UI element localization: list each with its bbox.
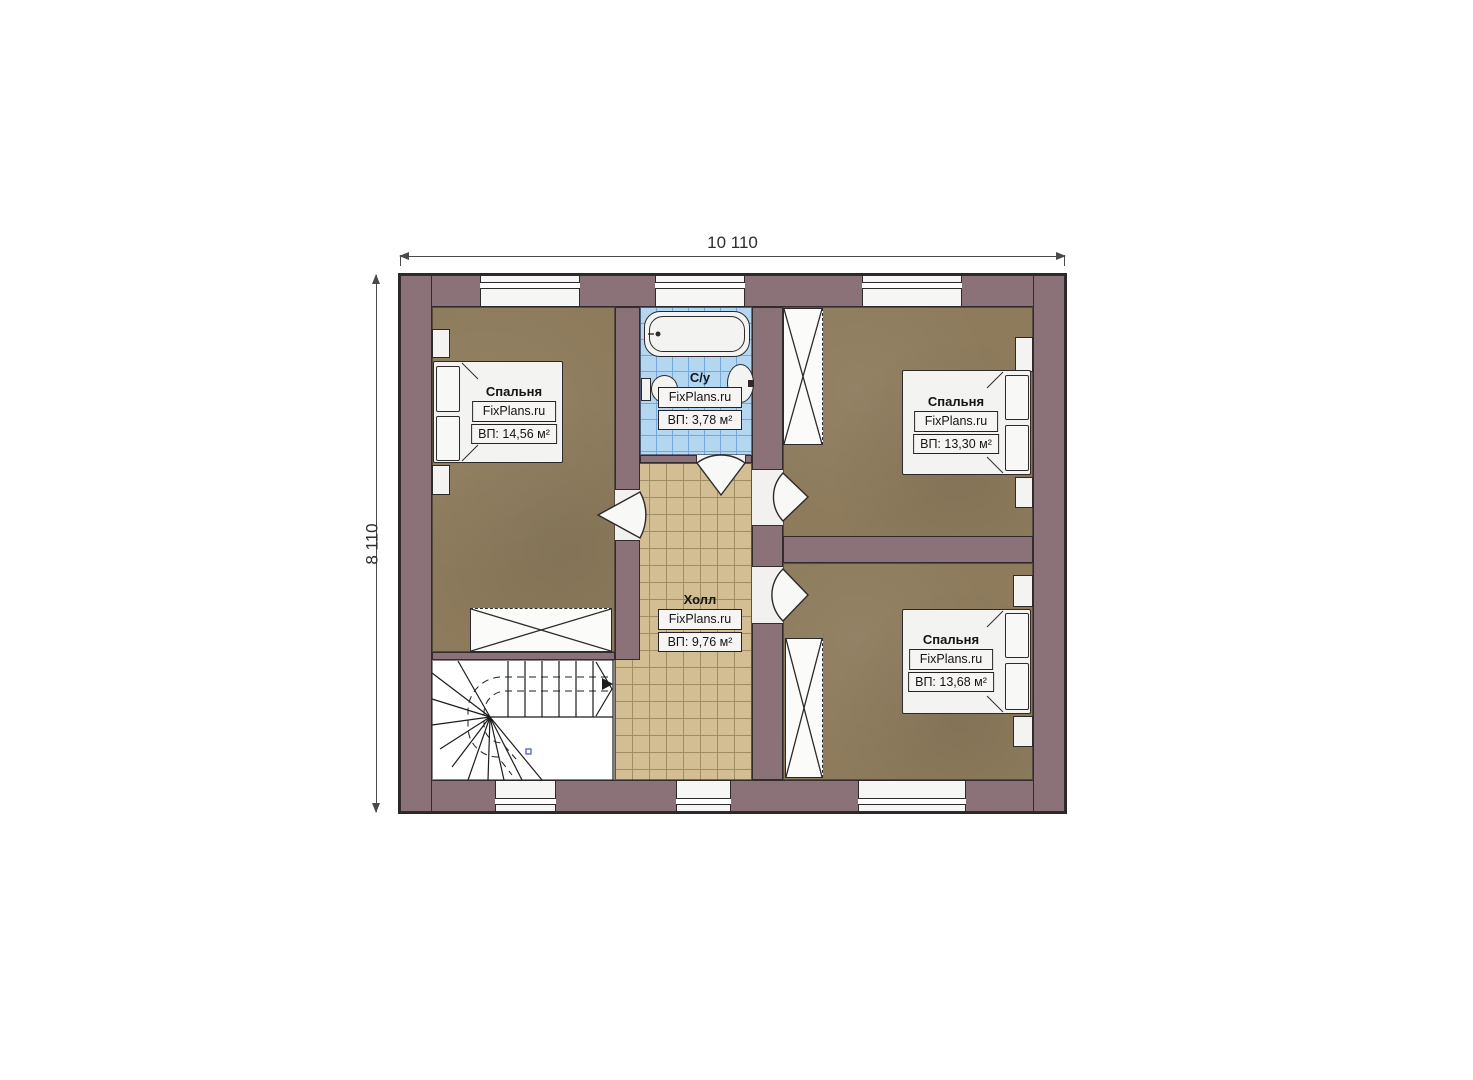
area-label: ВП: 13,68 м² [908,672,994,692]
wardrobe [785,638,823,778]
window-bottom-right [858,780,966,812]
bedroom-left-floor [432,307,615,652]
exterior-wall-right [1033,275,1065,812]
floor-plan-page: 10 110 8 110 [0,0,1473,1080]
brand-label: FixPlans.ru [472,401,556,421]
nightstand [1015,477,1033,508]
area-label: ВП: 14,56 м² [471,424,557,444]
door-opening-top-right-bedroom [752,470,783,525]
pillow [1005,375,1029,420]
window-top-right [862,275,962,307]
dimension-width-line [400,256,1065,257]
wardrobe-cross-icon [784,309,822,444]
dimension-width-label: 10 110 [400,234,1065,253]
pillow [1005,425,1029,471]
exterior-wall-left [400,275,432,812]
pillow [1005,613,1029,658]
dimension-height-label: 8 110 [363,523,383,564]
area-label: ВП: 13,30 м² [913,434,999,454]
area-label: ВП: 3,78 м² [658,410,742,430]
room-label-bedroom-bottom-right: Спальня FixPlans.ru ВП: 13,68 м² [908,633,994,692]
room-name: С/у [690,371,710,385]
pillow [1005,663,1029,710]
room-name: Холл [684,593,717,607]
wardrobe-cross-icon [786,639,822,777]
window-bottom-left [495,780,556,812]
toilet-tank [641,378,651,401]
window-sash [676,798,731,805]
area-label: ВП: 9,76 м² [658,632,742,652]
wardrobe-cross-icon [471,609,611,651]
wall-bathroom-bottom-right [745,455,752,463]
wall-hall-right-upper [752,307,783,470]
nightstand [1015,337,1033,372]
wardrobe [783,308,823,445]
nightstand [432,329,450,358]
wall-left-bedroom-lower [615,540,640,660]
brand-label: FixPlans.ru [914,411,998,431]
room-label-bathroom: С/у FixPlans.ru ВП: 3,78 м² [658,371,742,430]
window-top-left [480,275,580,307]
wall-hall-right-lower [752,623,783,780]
nightstand [1013,575,1033,607]
wall-hall-right-middle [752,525,783,567]
room-name: Спальня [928,395,984,409]
pillow [436,416,460,461]
window-sash [862,282,962,289]
wall-bathroom-bottom-left [640,455,697,463]
nightstand [1013,716,1033,747]
pillow [436,366,460,412]
floor-plan: Спальня FixPlans.ru ВП: 14,56 м² С/у Fix… [400,275,1065,812]
door-opening-left-bedroom [615,490,640,540]
window-sash [858,798,966,805]
brand-label: FixPlans.ru [909,649,993,669]
bathtub-inner [649,316,745,352]
wall-left-bedroom-upper [615,307,640,490]
nightstand [432,465,450,495]
dimension-tick [400,255,401,266]
dimension-top: 10 110 [400,234,1065,257]
window-top-middle [655,275,745,307]
room-label-bedroom-top-right: Спальня FixPlans.ru ВП: 13,30 м² [913,395,999,454]
brand-label: FixPlans.ru [658,387,742,407]
staircase-floor [432,660,615,780]
brand-label: FixPlans.ru [658,609,742,629]
door-opening-bottom-right-bedroom [752,567,783,623]
bathtub [644,311,750,357]
dimension-arrow-up-icon [372,274,380,284]
sink-tap-icon [748,380,754,387]
dimension-tick [1064,255,1065,266]
window-sash [495,798,556,805]
room-name: Спальня [923,633,979,647]
dimension-arrow-down-icon [372,803,380,813]
wardrobe [470,608,612,652]
wall-bedroom-stairs [432,652,615,660]
room-label-bedroom-left: Спальня FixPlans.ru ВП: 14,56 м² [471,385,557,444]
door-opening-bathroom [697,455,745,463]
window-sash [655,282,745,289]
dimension-left: 8 110 [368,275,388,812]
room-label-hall: Холл FixPlans.ru ВП: 9,76 м² [658,593,742,652]
window-bottom-middle [676,780,731,812]
room-name: Спальня [486,385,542,399]
wall-between-right-bedrooms [783,536,1033,563]
window-sash [480,282,580,289]
